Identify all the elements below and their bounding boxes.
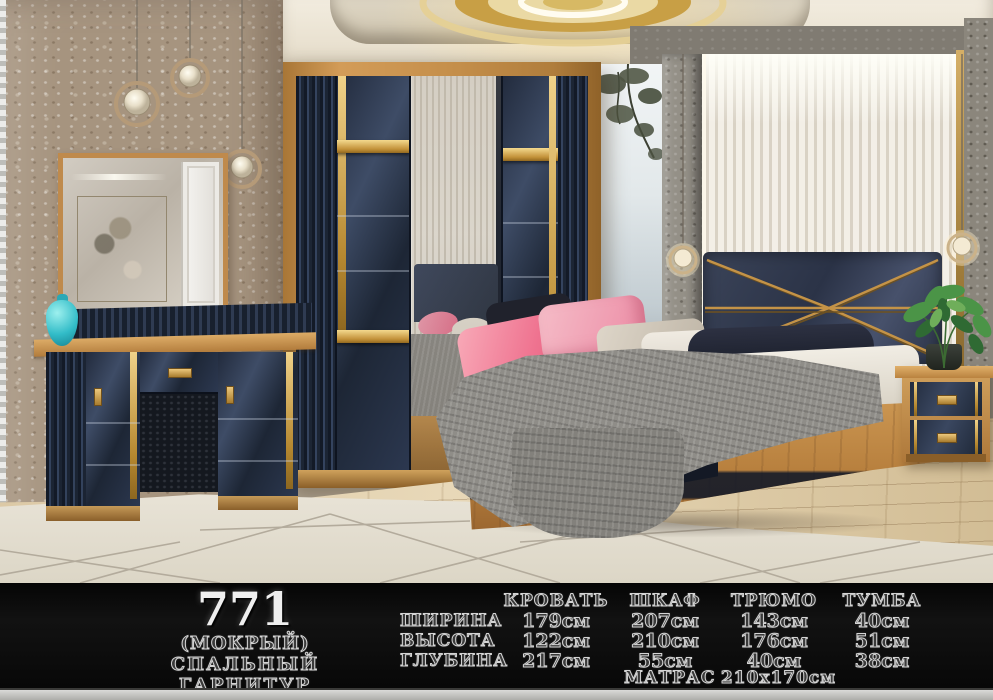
vanity-mirror (58, 153, 228, 318)
spec-value: 51см (830, 631, 934, 651)
gold-stripe (914, 420, 917, 454)
spec-col-header: ТУМБА (830, 591, 934, 611)
bedroom-furniture-photo: 771 (МОКРЫЙ) СПАЛЬНЫЙ ГАРНИТУР КРОВАТЬ Ш… (0, 0, 993, 700)
spec-col-header: ШКАФ (612, 591, 718, 611)
gold-stripe (975, 382, 978, 416)
bottom-edge-strip (0, 688, 993, 700)
nightstand-drawer (910, 382, 982, 416)
panel-seam (336, 215, 410, 217)
dresser-drawer (140, 352, 218, 394)
led-cove-glow (700, 54, 958, 124)
model-number: 771 (110, 585, 380, 633)
spec-corner-cell (400, 591, 500, 611)
door-gap (335, 76, 337, 472)
wardrobe-gold-strip (338, 76, 346, 334)
gold-stripe (286, 352, 293, 489)
wardrobe-door-left (336, 76, 410, 472)
spec-value: 179см (500, 611, 612, 631)
mirror-light-streak (71, 174, 167, 180)
spec-table: КРОВАТЬ ШКАФ ТРЮМО ТУМБА ШИРИНА 179см 20… (400, 591, 934, 671)
spec-value: 40см (830, 611, 934, 631)
gold-stripe (975, 420, 978, 454)
wardrobe-gold-bar (336, 330, 410, 343)
spec-value: 176см (718, 631, 830, 651)
spec-row-label: ШИРИНА (400, 611, 500, 631)
spec-col-header: ТРЮМО (718, 591, 830, 611)
wall-edge-strip (0, 0, 6, 583)
wardrobe-ribbed-panel-left (296, 76, 336, 472)
houseplant-icon (898, 280, 993, 372)
door-gap (409, 76, 411, 472)
pendant-light-icon (660, 54, 706, 294)
nightstand (902, 366, 990, 462)
door-handle (94, 388, 102, 406)
spec-value: 38см (830, 651, 934, 671)
panel-seam (86, 464, 140, 466)
spec-value: 143см (718, 611, 830, 631)
spec-row-label: ВЫСОТА (400, 631, 500, 651)
pendant-light-icon (944, 54, 984, 284)
dresser-ribbed-column (46, 352, 86, 508)
drawer-handle (937, 395, 957, 405)
nightstand-drawer (910, 420, 982, 454)
spec-banner: 771 (МОКРЫЙ) СПАЛЬНЫЙ ГАРНИТУР КРОВАТЬ Ш… (0, 583, 993, 688)
panel-seam (218, 418, 298, 420)
drawer-handle (937, 433, 957, 443)
product-title-block: 771 (МОКРЫЙ) СПАЛЬНЫЙ ГАРНИТУР (110, 585, 380, 696)
panel-seam (86, 422, 140, 424)
gold-stripe (130, 352, 137, 499)
gold-stripe (914, 382, 917, 416)
spec-value: 122см (500, 631, 612, 651)
dresser-door-left (86, 352, 140, 508)
dresser-plinth (46, 506, 140, 521)
dresser-knee-space (140, 394, 218, 492)
panel-seam (218, 460, 298, 462)
door-handle (226, 386, 234, 404)
spec-row-label: ГЛУБИНА (400, 651, 500, 671)
dresser-plinth (218, 496, 298, 510)
mattress-size: МАТРАС 210х170см (560, 669, 900, 687)
blanket-drape (512, 428, 684, 538)
panel-seam (336, 270, 410, 272)
reflected-painting (77, 196, 167, 302)
drawer-handle (168, 368, 192, 378)
spec-value: 217см (500, 651, 612, 671)
dresser-door-right (218, 352, 298, 498)
tree-branches-icon (598, 64, 664, 234)
reflected-door (181, 162, 219, 307)
nightstand-plinth (906, 454, 986, 462)
spec-value: 210см (612, 631, 718, 651)
mattress-value: 210х170см (721, 668, 836, 688)
mattress-label: МАТРАС (624, 668, 715, 688)
wardrobe-gold-bar (336, 140, 410, 153)
spec-value: 207см (612, 611, 718, 631)
model-variant: (МОКРЫЙ) (110, 633, 380, 654)
spec-col-header: КРОВАТЬ (500, 591, 612, 611)
